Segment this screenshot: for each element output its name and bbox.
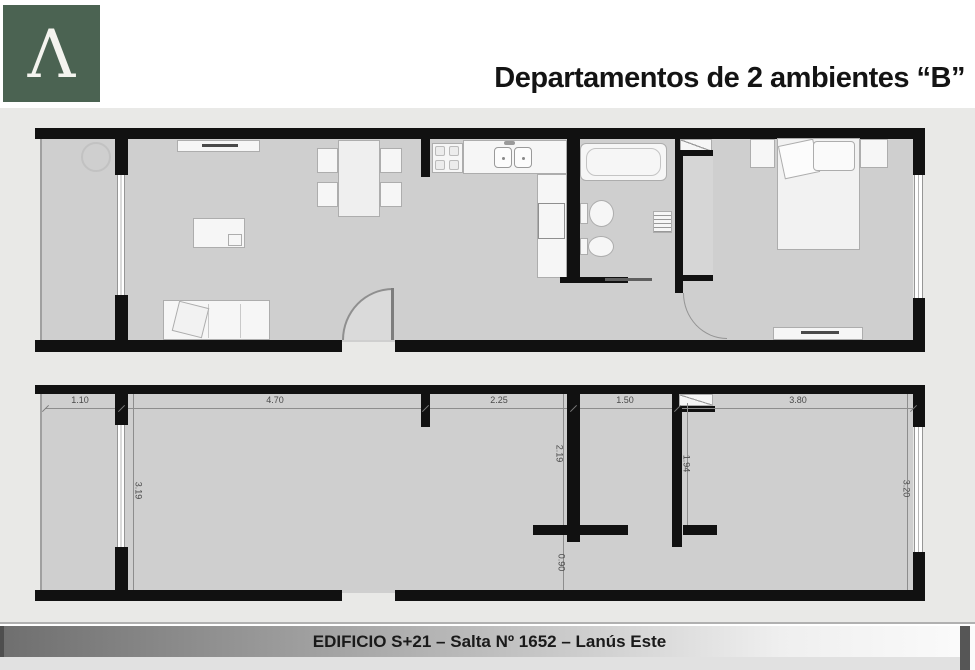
dim-label-living-depth: 3.19 (133, 476, 144, 506)
dim-label-living-width: 4.70 (250, 395, 300, 406)
stove-burner (435, 160, 445, 170)
wall (115, 547, 128, 590)
sink-faucet (504, 141, 515, 145)
slide: Λ Departamentos de 2 ambientes “B” (0, 0, 975, 670)
footer-right-edge (960, 626, 970, 670)
wall (567, 394, 580, 542)
wall (115, 295, 128, 340)
dining-chair (380, 148, 402, 173)
balcony-table (81, 142, 111, 172)
dim-label-kitchen-depth: 2.19 (554, 439, 565, 469)
footer-under-strip (0, 657, 960, 670)
footer-right-margin (970, 626, 975, 670)
footer-text: EDIFICIO S+21 – Salta Nº 1652 – Lanús Es… (313, 632, 666, 651)
dim-label-balcony-width: 1.10 (55, 395, 105, 406)
dining-table (338, 140, 380, 217)
laptop (228, 234, 242, 246)
wall (533, 525, 628, 535)
wall (395, 340, 925, 352)
pillow (813, 141, 855, 171)
wall (913, 552, 925, 601)
toilet-tank (580, 203, 588, 224)
bidet-tank (580, 238, 588, 255)
footer-divider (0, 622, 975, 624)
wall (115, 139, 128, 175)
stove-burner (449, 146, 459, 156)
logo-lambda-icon: Λ (3, 5, 100, 104)
entry-door-leaf (391, 288, 394, 340)
page-title: Departamentos de 2 ambientes “B” (494, 62, 965, 95)
wall (675, 275, 713, 281)
balcony-sliding-door (117, 175, 125, 295)
dim-label-bedroom-width: 3.80 (773, 395, 823, 406)
dim-line (45, 408, 115, 409)
nightstand (860, 139, 888, 168)
bathroom-sliding-door (605, 278, 652, 281)
closet (679, 394, 713, 406)
stove-burner (449, 160, 459, 170)
fridge (538, 203, 565, 239)
dim-label-bath-width: 1.50 (600, 395, 650, 406)
dim-line (682, 408, 913, 409)
bidet (588, 236, 614, 257)
sofa-cushion-line (240, 304, 241, 338)
wall (913, 298, 925, 352)
sink-basin (494, 147, 512, 168)
wall (35, 340, 342, 352)
balcony-edge (40, 139, 42, 340)
dresser-tv (801, 331, 839, 334)
closet-strip (683, 156, 713, 275)
dim-line (580, 408, 672, 409)
tv (202, 144, 238, 147)
wall (35, 590, 342, 601)
dim-label-kitchen-width: 2.25 (474, 395, 524, 406)
company-logo: Λ (3, 5, 100, 102)
balcony-edge (40, 394, 42, 590)
wall (35, 385, 925, 394)
sink-basin (514, 147, 532, 168)
floor-plan-dimensioned: 1.10 4.70 2.25 1.50 3.80 3.19 2.19 0.90 … (35, 385, 925, 601)
balcony-sliding-door (117, 425, 125, 547)
nightstand (750, 139, 775, 168)
towel-shelf (653, 211, 672, 233)
bedroom-window (914, 427, 923, 552)
stove-burner (435, 146, 445, 156)
wall (115, 394, 128, 425)
dim-label-closet-depth: 1.94 (681, 449, 692, 479)
dim-label-bedroom-depth: 3.20 (901, 474, 912, 504)
floor-plan-furnished (35, 128, 925, 352)
wall (395, 590, 925, 601)
bedroom-window (914, 175, 923, 298)
wall (675, 150, 713, 156)
wall (421, 139, 430, 177)
wall (913, 128, 925, 175)
wall (675, 139, 683, 293)
bathtub-inner (586, 148, 661, 176)
wall (683, 525, 717, 535)
toilet (589, 200, 614, 227)
dim-line (128, 408, 421, 409)
wall (567, 139, 580, 283)
dim-line (430, 408, 567, 409)
footer-bar: EDIFICIO S+21 – Salta Nº 1652 – Lanús Es… (0, 626, 975, 657)
dining-chair (317, 182, 338, 207)
dining-chair (380, 182, 402, 207)
floor-area (40, 389, 913, 593)
dining-chair (317, 148, 338, 173)
dim-label-hall-depth: 0.90 (556, 548, 567, 578)
